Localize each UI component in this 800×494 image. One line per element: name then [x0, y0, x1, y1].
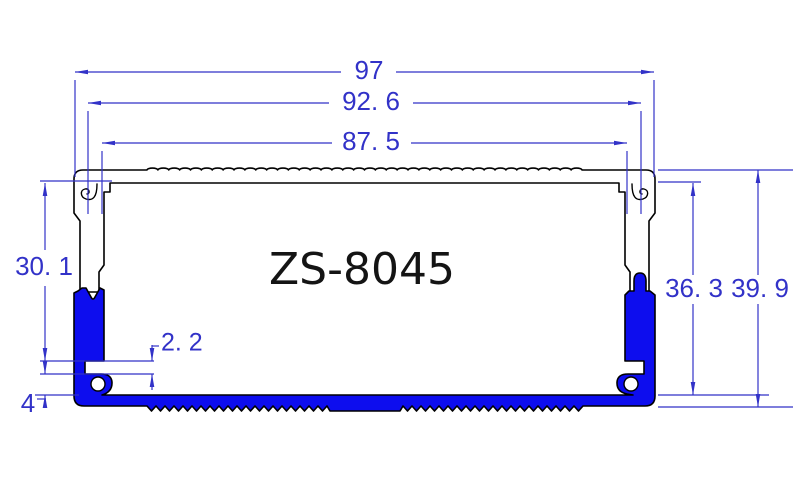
dimension-label-inner-height: 36. 3: [665, 273, 723, 303]
dimension-slot-height: 2. 2: [40, 329, 203, 390]
dimension-label-inner-width: 87. 5: [342, 126, 400, 156]
dimension-arrowhead: [691, 183, 696, 196]
dimension-arrowhead: [150, 348, 155, 361]
dimension-base-height: 4: [21, 363, 79, 418]
dimension-arrowhead: [88, 101, 101, 106]
dimension-label-hook-width: 92. 6: [342, 86, 400, 116]
dimension-label-overall-width: 97: [355, 55, 384, 85]
left-screw-hook-hole: [91, 377, 105, 391]
technical-drawing-page: 97 92. 6 87. 5 30. 1 2. 2 4: [0, 0, 800, 494]
dimension-arrowhead: [628, 101, 641, 106]
dimension-arrowhead: [102, 141, 115, 146]
dimension-overall-width: 97: [75, 55, 654, 177]
dimension-arrowhead: [43, 348, 48, 361]
dimension-arrowhead: [75, 70, 88, 75]
dimension-arrowhead: [43, 183, 48, 196]
dimension-arrowhead: [756, 170, 761, 183]
model-number-label: ZS-8045: [269, 244, 455, 295]
dimension-label-left-height: 30. 1: [15, 251, 73, 281]
drawing-canvas: 97 92. 6 87. 5 30. 1 2. 2 4: [0, 0, 800, 494]
dimension-arrowhead: [691, 382, 696, 395]
dimension-arrowhead: [614, 141, 627, 146]
dimension-arrowhead: [150, 374, 155, 387]
dimension-label-overall-height: 39. 9: [731, 273, 789, 303]
dimension-label-base-height: 4: [21, 388, 35, 418]
dimension-label-slot-height: 2. 2: [161, 329, 203, 357]
right-screw-hook-hole: [624, 377, 638, 391]
dimension-arrowhead: [641, 70, 654, 75]
dimension-arrowhead: [756, 394, 761, 407]
dimension-arrowhead: [43, 395, 48, 408]
dimension-arrowhead: [43, 361, 48, 374]
